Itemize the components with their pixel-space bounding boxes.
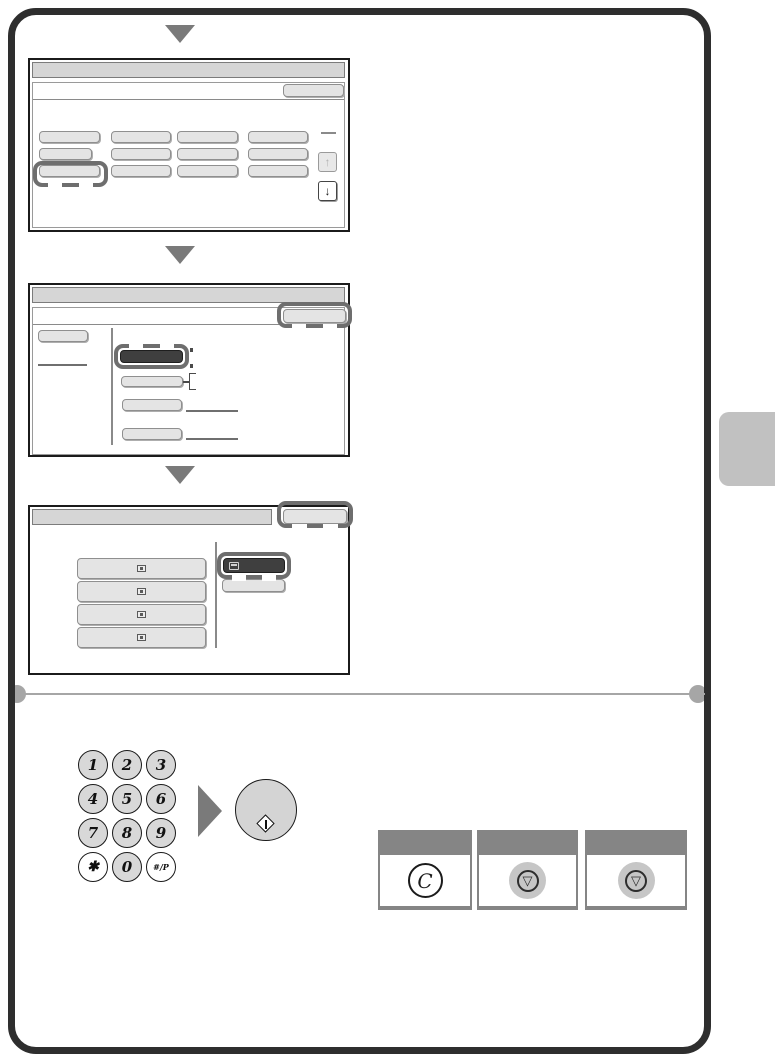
keypad-key-8: 8 (112, 818, 142, 848)
touch-button (111, 148, 171, 160)
stop-key-icon: ▽ (509, 862, 546, 899)
flow-arrow-down-icon (165, 25, 195, 43)
ok-button-highlight (277, 302, 352, 328)
document-icon (137, 634, 146, 641)
setting-button (121, 376, 183, 387)
destination-button (77, 604, 206, 625)
scroll-down-button: ↓ (318, 181, 337, 201)
keypad-key-6: 6 (146, 784, 176, 814)
keypad-key-5: 5 (112, 784, 142, 814)
callout-tick (190, 348, 193, 352)
touch-button (177, 131, 238, 143)
value-underline (186, 438, 238, 440)
scroll-indicator-dash (321, 132, 336, 134)
keypad-key-1: 1 (78, 750, 108, 780)
touch-button (39, 131, 100, 143)
keypad-key-star: ✱ (78, 852, 108, 882)
selection-highlight (217, 552, 291, 579)
touch-button (39, 148, 92, 160)
touch-screen-step-2 (28, 283, 350, 457)
screen-header-bar (32, 62, 345, 78)
clear-key-icon: C (408, 863, 443, 898)
document-icon (137, 588, 146, 595)
scroll-up-button: ↑ (318, 152, 337, 172)
callout-bracket (189, 373, 196, 390)
column-divider-line (111, 328, 113, 445)
menu-tab-button (38, 330, 88, 342)
selection-highlight (114, 344, 189, 369)
clear-key-panel: C (378, 830, 472, 910)
touch-button (177, 148, 238, 160)
label-underline (38, 364, 87, 366)
document-icon (137, 565, 146, 572)
value-underline (186, 410, 238, 412)
setting-button (122, 428, 182, 440)
touch-button (111, 165, 171, 177)
keypad-key-hash-p: #/P (146, 852, 176, 882)
arrow-up-icon: ↑ (325, 155, 331, 169)
flow-arrow-down-icon (165, 246, 195, 264)
stop-key-panel-1: ▽ (477, 830, 578, 910)
touch-button (248, 131, 308, 143)
screen-content-area: ↑ ↓ (32, 82, 345, 228)
start-diamond-icon (254, 812, 278, 836)
destination-button (77, 627, 206, 648)
destination-button (77, 558, 206, 579)
screen-header-bar (32, 287, 345, 303)
ok-button (283, 84, 344, 97)
touch-screen-step-3 (28, 505, 350, 675)
destination-button (77, 581, 206, 602)
document-icon (137, 611, 146, 618)
section-divider (15, 693, 705, 695)
stop-key-icon: ▽ (618, 862, 655, 899)
keypad-key-9: 9 (146, 818, 176, 848)
mode-button (222, 579, 285, 592)
touch-button (177, 165, 238, 177)
page-edge-tab (719, 412, 775, 486)
setting-button (122, 399, 182, 411)
keypad-key-3: 3 (146, 750, 176, 780)
stop-key-panel-2: ▽ (585, 830, 687, 910)
keypad-key-2: 2 (112, 750, 142, 780)
touch-button (248, 148, 308, 160)
touch-button (111, 131, 171, 143)
keypad-key-0: 0 (112, 852, 142, 882)
header-separator-line (33, 99, 344, 100)
selection-highlight (33, 161, 108, 187)
keypad-key-4: 4 (78, 784, 108, 814)
flow-arrow-right-icon (198, 785, 222, 837)
arrow-down-icon: ↓ (325, 184, 331, 198)
screen-header-bar (32, 509, 272, 525)
start-key (235, 779, 297, 841)
keypad-key-7: 7 (78, 818, 108, 848)
touch-screen-step-1: ↑ ↓ (28, 58, 350, 232)
callout-tick (190, 364, 193, 368)
screen-content-area (32, 307, 345, 455)
ok-button-highlight (277, 501, 353, 528)
touch-button (248, 165, 308, 177)
flow-arrow-down-icon (165, 466, 195, 484)
